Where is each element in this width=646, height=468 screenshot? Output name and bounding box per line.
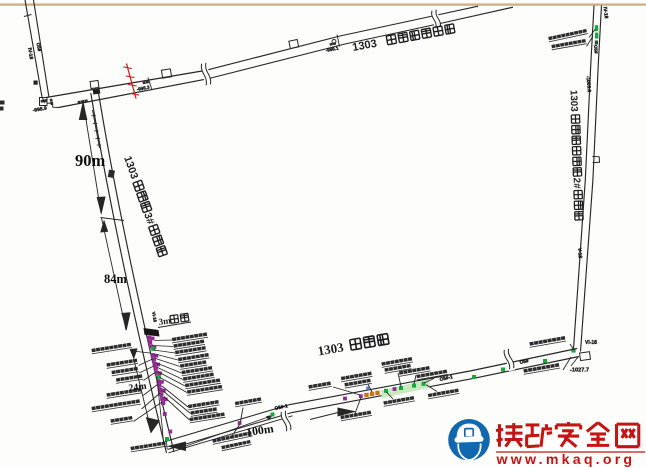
svg-text:www.mkaq.org: www.mkaq.org (496, 452, 636, 468)
svg-text:O5#: O5# (593, 45, 599, 55)
svg-text:-1027.7: -1027.7 (570, 368, 589, 374)
svg-text:V-18: V-18 (576, 248, 583, 259)
svg-text:90m: 90m (75, 151, 106, 170)
svg-text:84m: 84m (104, 272, 128, 286)
svg-text:1303: 1303 (568, 90, 580, 113)
svg-text:VI-18: VI-18 (585, 340, 597, 346)
svg-text:2#: 2# (571, 177, 582, 189)
